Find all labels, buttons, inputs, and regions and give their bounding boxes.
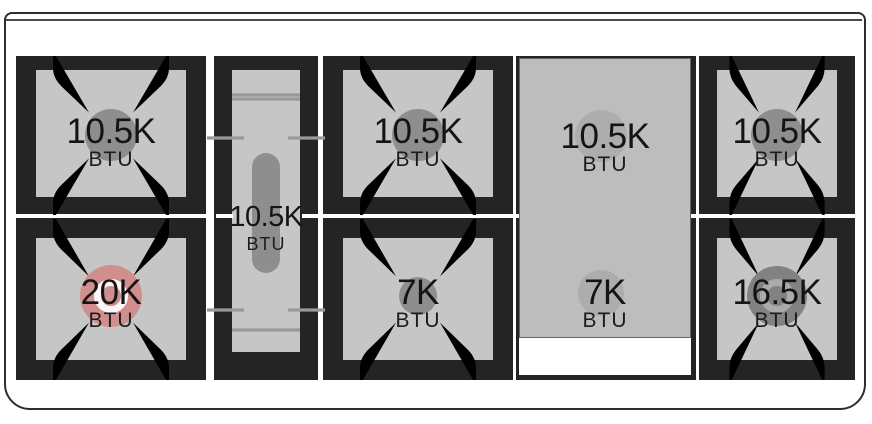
grate-module-right: 10.5K BTU 16.5K BTU [699, 56, 855, 380]
btu-value: 10.5K [16, 114, 206, 149]
btu-unit: BTU [214, 232, 318, 256]
grate-module-middle: 10.5K BTU 7K BTU [323, 56, 513, 380]
burner-middle-rear[interactable]: 10.5K BTU [323, 56, 513, 215]
griddle-front-cutout [519, 338, 691, 375]
grate-module-griddle: 10.5K BTU 7K BTU [516, 56, 696, 380]
btu-value: 16.5K [699, 275, 855, 310]
burner-label: 10.5K BTU [214, 202, 318, 256]
btu-unit: BTU [699, 149, 855, 171]
btu-unit: BTU [16, 310, 206, 332]
burner-right-rear[interactable]: 10.5K BTU [699, 56, 855, 215]
burner-left-front-highlighted[interactable]: 20K BTU [16, 219, 206, 380]
burner-left-rear[interactable]: 10.5K BTU [16, 56, 206, 215]
burner-label: 10.5K BTU [520, 119, 690, 176]
grate-module-left: 10.5K BTU 20K BTU [16, 56, 206, 380]
btu-unit: BTU [520, 310, 690, 332]
burner-label: 10.5K BTU [16, 114, 206, 171]
burner-label: 20K BTU [16, 275, 206, 332]
back-edge-line [6, 19, 862, 21]
btu-value: 10.5K [323, 114, 513, 149]
burner-label: 10.5K BTU [323, 114, 513, 171]
btu-unit: BTU [16, 149, 206, 171]
btu-value: 10.5K [214, 202, 318, 232]
btu-value: 10.5K [520, 119, 690, 154]
burner-label: 7K BTU [323, 275, 513, 332]
btu-value: 10.5K [699, 114, 855, 149]
grate-module-center-oval: 10.5K BTU [214, 56, 318, 380]
btu-unit: BTU [699, 310, 855, 332]
burner-right-front[interactable]: 16.5K BTU [699, 219, 855, 380]
btu-unit: BTU [323, 310, 513, 332]
griddle-plate[interactable]: 10.5K BTU 7K BTU [519, 58, 691, 338]
btu-unit: BTU [323, 149, 513, 171]
burner-label: 16.5K BTU [699, 275, 855, 332]
burner-label: 7K BTU [520, 275, 690, 332]
btu-unit: BTU [520, 154, 690, 176]
burner-label: 10.5K BTU [699, 114, 855, 171]
btu-value: 20K [16, 275, 206, 310]
range-cooktop-diagram: 10.5K BTU 20K BTU 10.5K BTU [0, 0, 872, 424]
burner-middle-front[interactable]: 7K BTU [323, 219, 513, 380]
btu-value: 7K [520, 275, 690, 310]
btu-value: 7K [323, 275, 513, 310]
